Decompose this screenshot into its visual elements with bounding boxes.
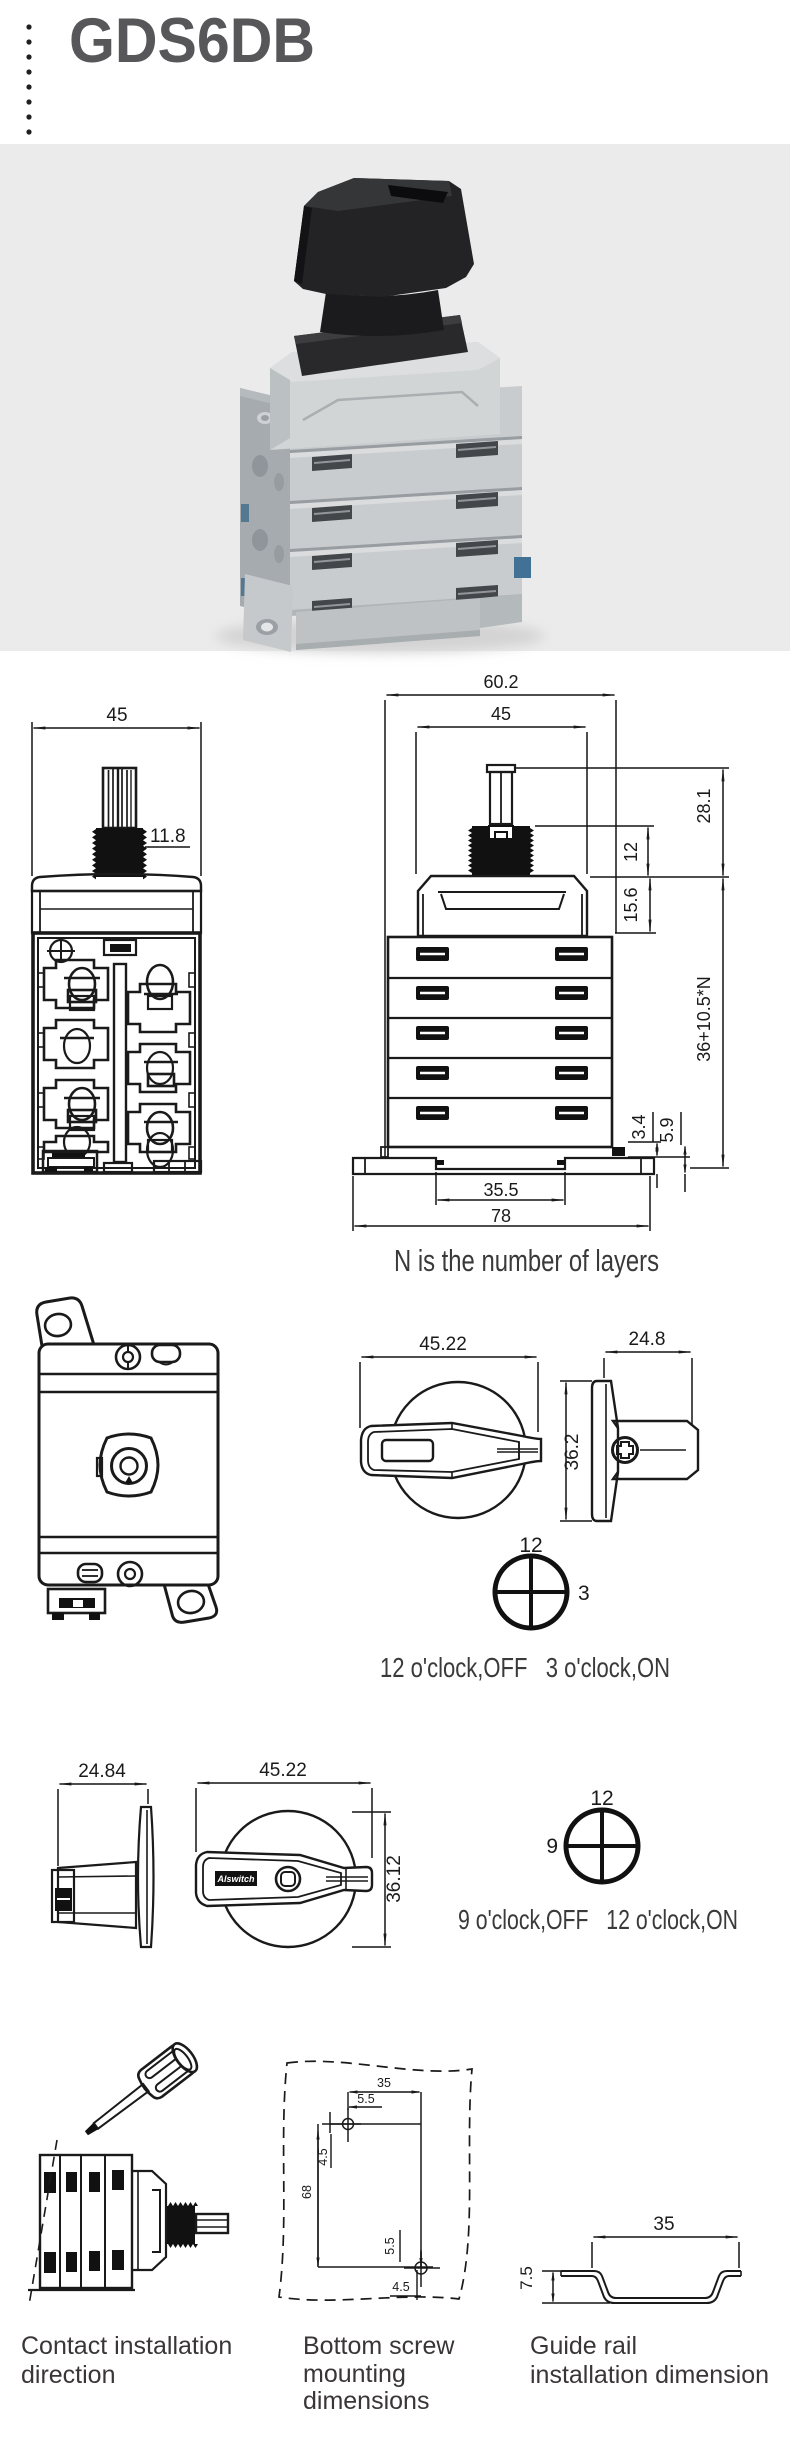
svg-text:direction: direction — [21, 2361, 116, 2389]
svg-text:28.1: 28.1 — [694, 788, 714, 823]
svg-text:Guide rail: Guide rail — [530, 2332, 637, 2360]
svg-text:78: 78 — [491, 1206, 511, 1226]
svg-text:12: 12 — [519, 1534, 542, 1557]
svg-text:12: 12 — [621, 842, 641, 862]
svg-text:36.2: 36.2 — [562, 1434, 583, 1471]
svg-text:12: 12 — [590, 1787, 613, 1810]
svg-text:11.8: 11.8 — [150, 826, 186, 847]
svg-text:35: 35 — [377, 2076, 391, 2090]
svg-text:9: 9 — [546, 1835, 558, 1858]
svg-text:mounting: mounting — [303, 2360, 406, 2388]
svg-text:Contact installation: Contact installation — [21, 2332, 232, 2360]
svg-text:N is the number of layers: N is the number of layers — [394, 1243, 659, 1278]
svg-text:45.22: 45.22 — [259, 1760, 307, 1781]
svg-text:Bottom screw: Bottom screw — [303, 2332, 455, 2360]
svg-text:60.2: 60.2 — [483, 672, 518, 692]
svg-text:5.9: 5.9 — [657, 1117, 677, 1142]
svg-text:36+10.5*N: 36+10.5*N — [694, 976, 714, 1062]
svg-text:36.12: 36.12 — [384, 1855, 405, 1903]
svg-text:68: 68 — [300, 2185, 314, 2199]
svg-text:9 o'clock,OFF 12 o'clock,ON: 9 o'clock,OFF 12 o'clock,ON — [458, 1904, 738, 1935]
svg-text:45.22: 45.22 — [419, 1334, 467, 1355]
svg-text:4.5: 4.5 — [392, 2280, 409, 2294]
svg-text:installation dimension: installation dimension — [530, 2361, 769, 2389]
svg-text:GDS6DB: GDS6DB — [69, 6, 315, 76]
svg-text:35: 35 — [653, 2214, 674, 2235]
svg-text:24.8: 24.8 — [629, 1329, 666, 1350]
svg-text:5.5: 5.5 — [383, 2237, 397, 2254]
svg-text:5.5: 5.5 — [357, 2092, 374, 2106]
svg-text:7.5: 7.5 — [517, 2266, 536, 2290]
svg-text:15.6: 15.6 — [621, 887, 641, 922]
svg-text:Alswitch: Alswitch — [216, 1874, 255, 1884]
svg-text:3.4: 3.4 — [629, 1114, 649, 1139]
svg-text:3: 3 — [578, 1582, 590, 1605]
svg-text:45: 45 — [491, 704, 511, 724]
svg-text:dimensions: dimensions — [303, 2387, 429, 2415]
svg-text:24.84: 24.84 — [78, 1761, 126, 1782]
svg-text:35.5: 35.5 — [483, 1180, 518, 1200]
svg-text:45: 45 — [106, 705, 127, 726]
svg-text:12 o'clock,OFF 3 o'clock,ON: 12 o'clock,OFF 3 o'clock,ON — [380, 1652, 670, 1683]
